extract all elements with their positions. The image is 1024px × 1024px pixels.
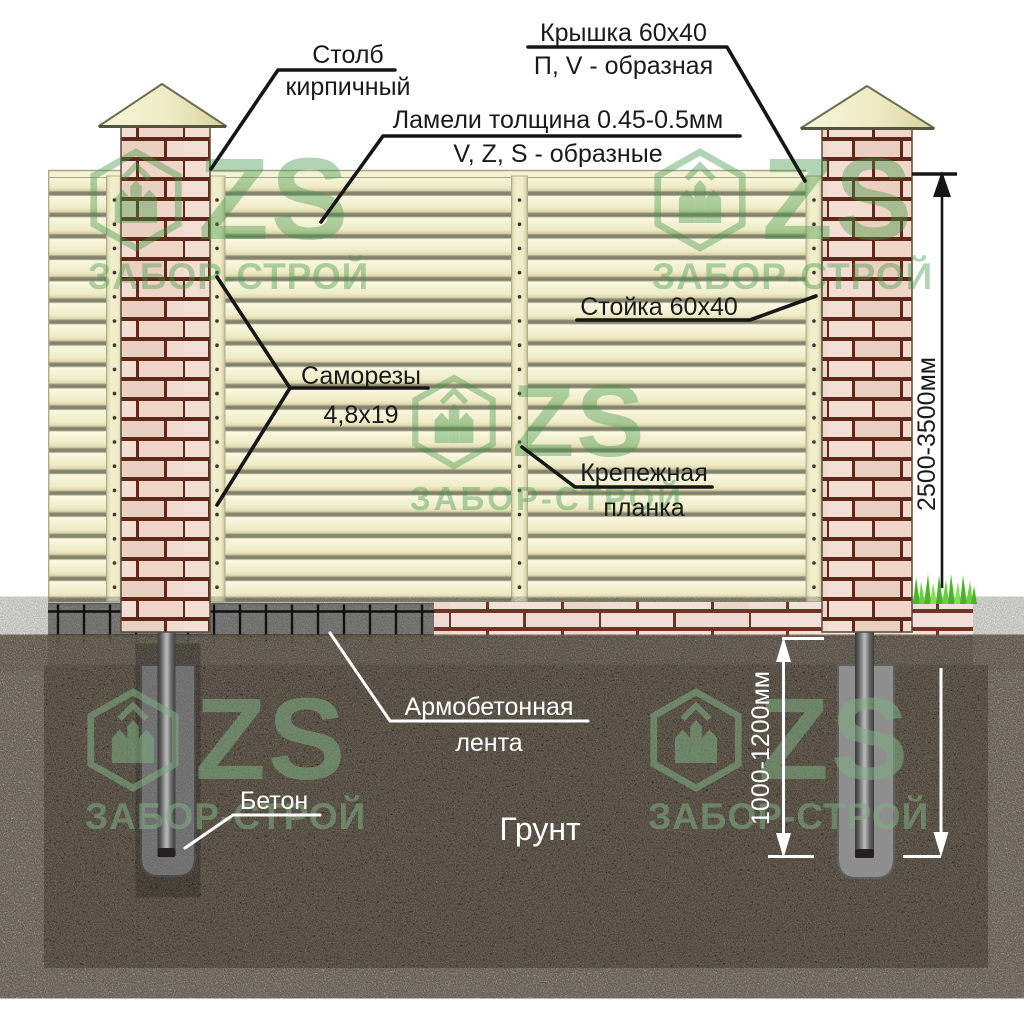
callout-armo-line2: лента [387, 725, 591, 761]
callout-cap-6040: Крышка 60x40 П, V - образная [516, 17, 731, 83]
callout-mounting-strip-line1: Крепежная [569, 456, 719, 491]
fence-construction-diagram: ZS ЗАБОР-СТРОЙ ZS ЗАБОР-СТРОЙ [0, 0, 1024, 1024]
callout-cap-line2: П, V - образная [516, 50, 731, 83]
callout-post-6040: Стойка 60x40 [567, 291, 751, 323]
callout-armo-line1: Армобетонная [387, 689, 591, 725]
callout-mounting-strip: Крепежная планка [569, 456, 719, 526]
callout-cap-line1: Крышка 60x40 [516, 17, 731, 50]
callout-mounting-strip-line2: планка [569, 491, 719, 526]
callout-brick-pillar: Столб кирпичный [258, 39, 438, 103]
callout-reinforced-concrete-strip: Армобетонная лента [387, 689, 591, 761]
foundation-depth-dimension [768, 637, 824, 858]
callout-lamellas-line1: Ламели толщина 0.45-0.5мм [372, 103, 744, 137]
callout-screws-line2: 4,8x19 [282, 396, 440, 435]
callout-concrete: Бетон [230, 785, 318, 817]
grass-tuft [913, 574, 977, 604]
callout-screws-line1: Саморезы [282, 357, 440, 396]
callout-brick-pillar-line1: Столб [258, 39, 438, 71]
callout-lamellas-line2: V, Z, S - образные [372, 137, 744, 171]
dimension-fence-height: 2500-3500мм [911, 334, 941, 534]
callout-screws: Саморезы 4,8x19 [282, 357, 440, 435]
pile-depth-arrow [903, 668, 949, 857]
callout-brick-pillar-line2: кирпичный [258, 71, 438, 103]
label-soil: Грунт [478, 813, 602, 845]
dimension-foundation-depth: 1000-1200мм [745, 648, 775, 848]
callout-lamellas: Ламели толщина 0.45-0.5мм V, Z, S - обра… [372, 103, 744, 171]
